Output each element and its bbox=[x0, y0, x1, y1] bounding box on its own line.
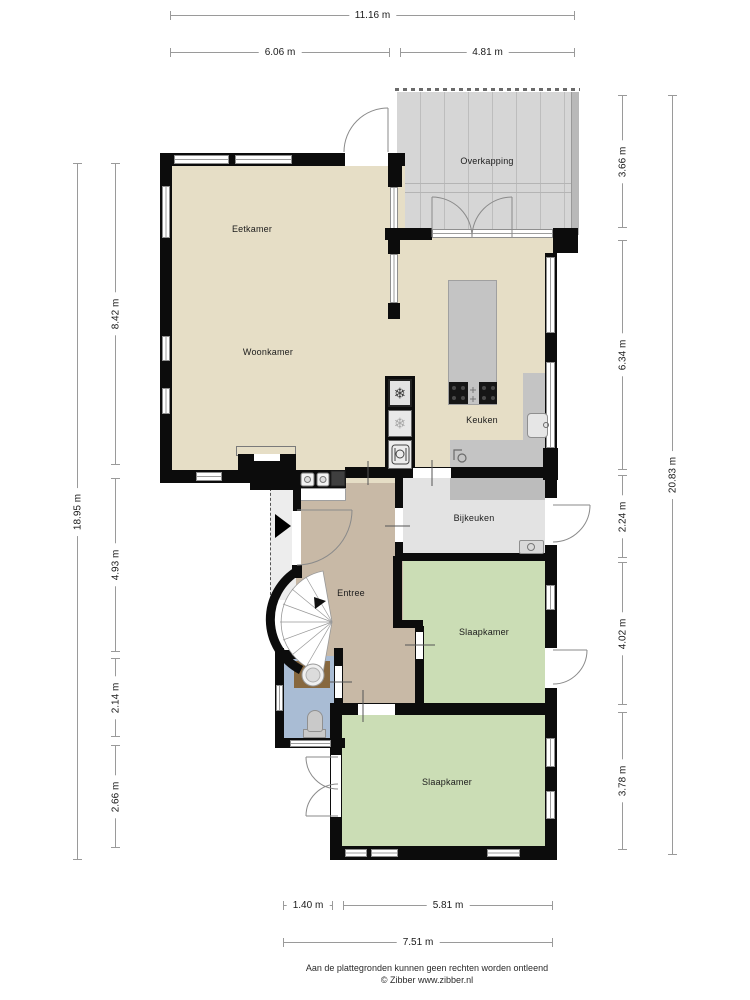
faucet-icon bbox=[544, 423, 549, 428]
dimension-bottom-left: 1.40 m bbox=[283, 905, 333, 906]
door-swing-eetkamer bbox=[344, 108, 388, 152]
spiral-staircase bbox=[270, 570, 332, 673]
dimension-right-2: 6.34 m bbox=[622, 240, 623, 470]
room-label-slaapkamer1: Slaapkamer bbox=[459, 627, 509, 637]
dimension-right-4: 4.02 m bbox=[622, 562, 623, 705]
plan-overlay bbox=[0, 0, 750, 1000]
sink-faucet-icon bbox=[454, 450, 466, 462]
washer-icon bbox=[528, 544, 535, 551]
room-label-overkapping: Overkapping bbox=[460, 156, 513, 166]
dimension-top-total: 11.16 m bbox=[170, 15, 575, 16]
dimension-top-left: 6.06 m bbox=[170, 52, 390, 53]
dimension-left-3: 2.14 m bbox=[115, 658, 116, 737]
dimension-left-1: 8.42 m bbox=[115, 163, 116, 465]
room-label-slaapkamer2: Slaapkamer bbox=[422, 777, 472, 787]
dimension-bottom-right: 5.81 m bbox=[343, 905, 553, 906]
dimension-left-total: 18.95 m bbox=[77, 163, 78, 860]
cooktop-burners bbox=[452, 386, 495, 402]
room-label-woonkamer: Woonkamer bbox=[243, 347, 293, 357]
footer-disclaimer: Aan de plattegronden kunnen geen rechten… bbox=[227, 963, 627, 973]
dimension-right-1: 3.66 m bbox=[622, 95, 623, 228]
dimension-top-right: 4.81 m bbox=[400, 52, 575, 53]
room-label-eetkamer: Eetkamer bbox=[232, 224, 272, 234]
dimension-bottom-total: 7.51 m bbox=[283, 942, 553, 943]
kitchenette-icons bbox=[301, 471, 345, 486]
oven-icon bbox=[392, 445, 409, 464]
dimension-right-3: 2.24 m bbox=[622, 475, 623, 558]
door-swing-slaapkamer1-ext bbox=[553, 650, 587, 684]
door-swing-front-door bbox=[297, 510, 352, 565]
dimension-right-5: 3.78 m bbox=[622, 712, 623, 850]
door-swing-slaapkamer2-french bbox=[306, 757, 338, 816]
footer-credit: © Zibber www.zibber.nl bbox=[227, 975, 627, 985]
door-swing-bijkeuken-ext bbox=[553, 505, 590, 542]
entrance-arrow-icon bbox=[275, 514, 291, 538]
washbasin-icon bbox=[302, 664, 324, 686]
floorplan-canvas: ❄ ❄ bbox=[0, 0, 750, 1000]
dimension-right-total: 20.83 m bbox=[672, 95, 673, 855]
door-swing-overkapping-french bbox=[432, 197, 512, 237]
dimension-left-4: 2.66 m bbox=[115, 745, 116, 848]
room-label-entree: Entree bbox=[337, 588, 365, 598]
room-label-keuken: Keuken bbox=[466, 415, 498, 425]
room-label-bijkeuken: Bijkeuken bbox=[454, 513, 495, 523]
dimension-left-2: 4.93 m bbox=[115, 478, 116, 652]
